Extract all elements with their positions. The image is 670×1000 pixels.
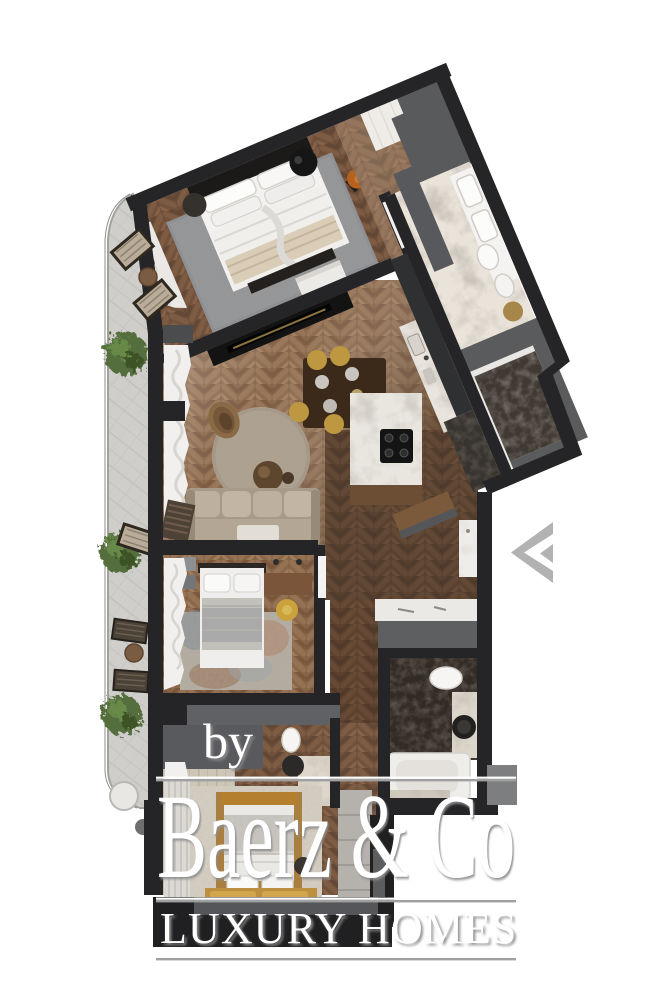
svg-text:by: by — [203, 713, 253, 769]
svg-text:LUXURY HOMES: LUXURY HOMES — [160, 904, 518, 953]
svg-text:Baerz & Co: Baerz & Co — [157, 769, 515, 904]
